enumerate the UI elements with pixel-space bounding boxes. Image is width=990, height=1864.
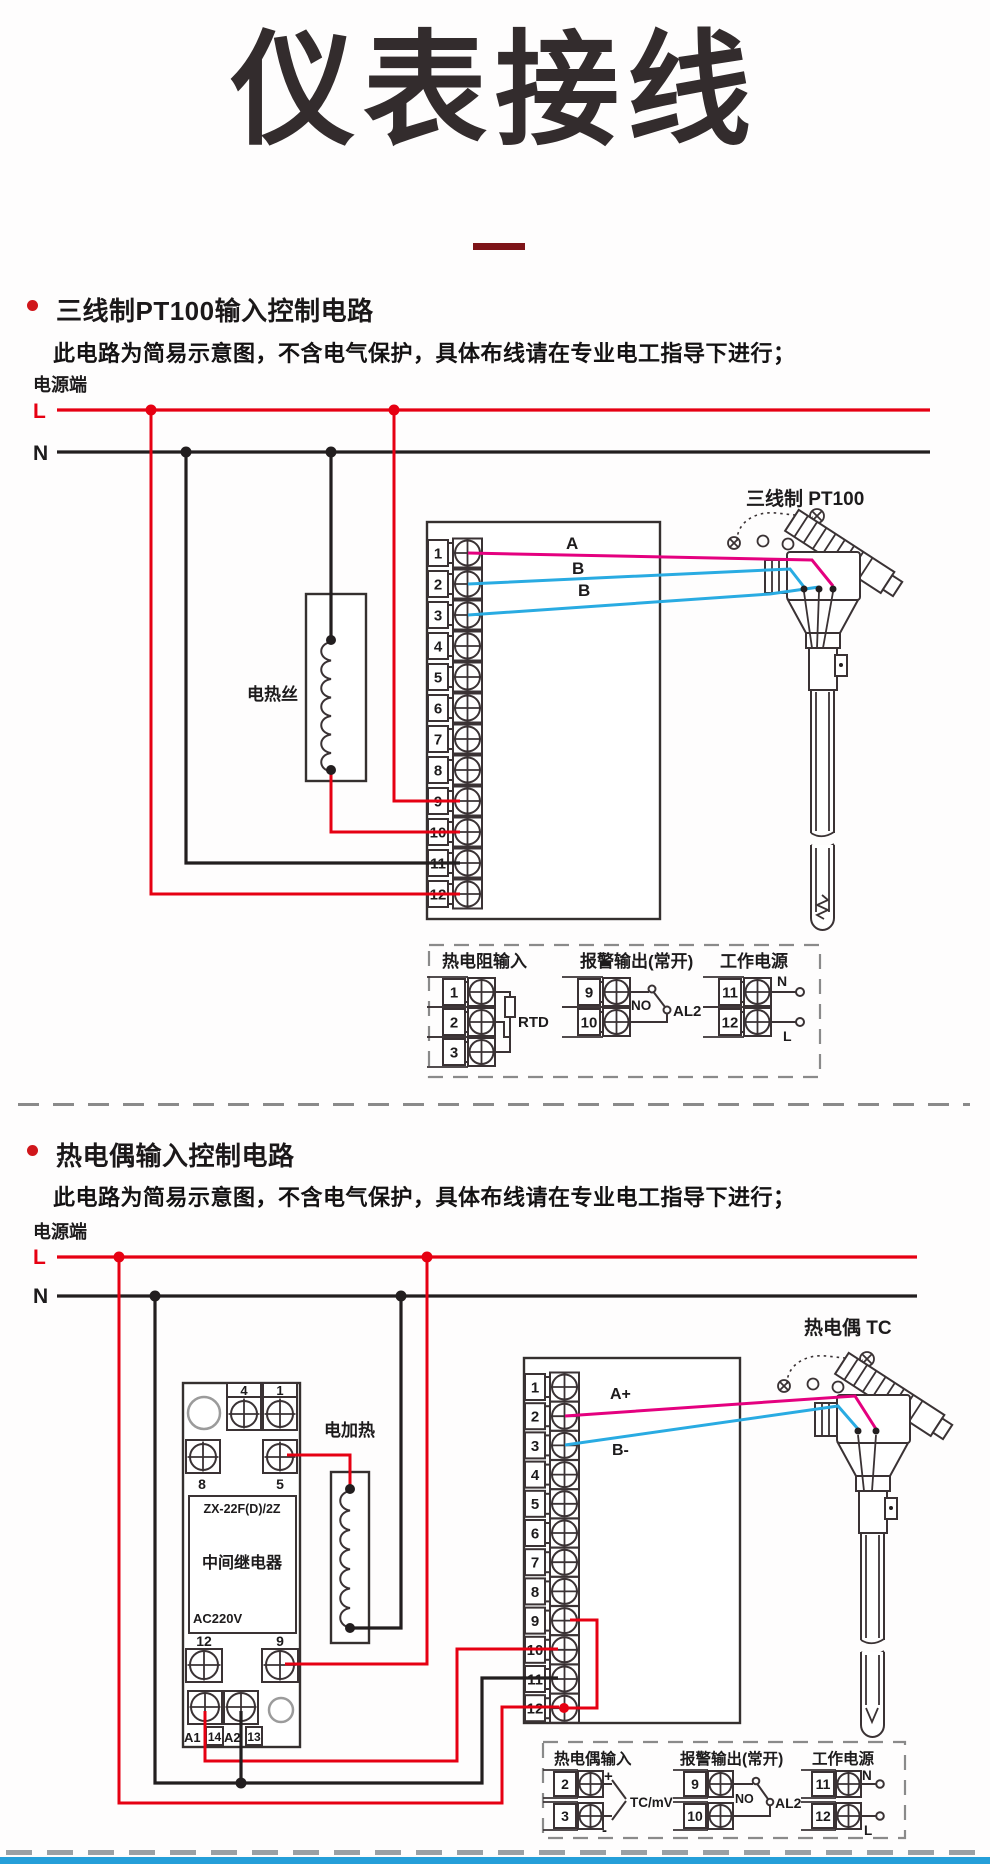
terminal-number: 10 [687, 1808, 703, 1824]
screw-terminal [227, 1397, 261, 1430]
sensor-label: 热电偶 TC [804, 1316, 892, 1339]
alarm-output-label: AL2 [673, 1003, 701, 1020]
cap-screw-icon [783, 539, 794, 550]
screw-terminal [186, 1440, 220, 1473]
legend-input-title: 热电偶输入 [554, 1749, 632, 1768]
terminal-number: 3 [561, 1808, 569, 1824]
relay-terminal-a1: A1 [184, 1730, 201, 1745]
cap-screw-icon [808, 1379, 819, 1390]
wire-b2-label: B [578, 581, 590, 600]
relay-indicator-circle [188, 1397, 220, 1429]
terminal-number: 8 [531, 1584, 539, 1601]
terminal-unit-10: 10 [562, 1007, 630, 1037]
terminal-unit-3: 3 [543, 1802, 603, 1830]
terminal-number: 12 [722, 1014, 739, 1031]
terminal-number: 4 [531, 1467, 540, 1484]
sensor-neck [838, 1435, 908, 1533]
legend-input-terminals: 123 [427, 977, 495, 1067]
wire-a-label: A [566, 534, 578, 553]
relay-terminal-13: 13 [247, 1730, 261, 1744]
terminal-number: 7 [531, 1555, 539, 1572]
rtd-label: RTD [518, 1014, 549, 1031]
section2-heading: 热电偶输入控制电路 [56, 1136, 295, 1173]
bottom-divider [6, 1850, 990, 1855]
terminal-number: 1 [434, 545, 442, 562]
legend-alarm-terminals: 910 [673, 1770, 733, 1830]
legend-power-title: 工作电源 [720, 951, 788, 971]
tc-plus-label: + [604, 1768, 613, 1785]
terminal-number: 11 [722, 984, 738, 1001]
terminal-unit-11: 11 [801, 1770, 861, 1798]
power-n-label: N [777, 973, 787, 989]
relay-voltage: AC220V [193, 1611, 242, 1626]
terminal-number: 11 [816, 1776, 831, 1792]
relay-terminal-12: 12 [196, 1633, 212, 1649]
terminal-number: 3 [531, 1438, 539, 1455]
terminal-unit-6: 6 [428, 694, 482, 723]
line-n-label: N [33, 1285, 48, 1308]
rtd-resistor-icon [505, 997, 515, 1017]
pt100-sensor: 三线制 PT100 [728, 487, 904, 930]
line-n-label: N [33, 442, 48, 465]
terminal-unit-1: 1 [427, 977, 495, 1007]
terminal-number: 6 [531, 1525, 539, 1542]
relay-indicator-circle [269, 1698, 293, 1722]
power-terminal-label: 电源端 [33, 374, 87, 395]
tc-mv-label: TC/mV [630, 1795, 673, 1810]
alarm-output-label: AL2 [775, 1795, 802, 1811]
terminal-unit-1: 1 [525, 1373, 579, 1402]
terminal-unit-7: 7 [428, 725, 482, 754]
thread-bushing [765, 560, 787, 593]
tc-minus-label: - [602, 1822, 607, 1839]
terminal-unit-9: 9 [562, 977, 630, 1007]
section1-heading: 三线制PT100输入控制电路 [56, 291, 374, 328]
relay-terminal-8: 8 [198, 1476, 206, 1492]
terminal-number: 2 [561, 1776, 569, 1792]
legend-input-terminals: 23 [543, 1770, 603, 1830]
relay-terminal-14: 14 [208, 1730, 222, 1744]
sensor-probe-shaft [811, 690, 834, 930]
terminal-unit-4: 4 [428, 632, 482, 661]
line-l-label: L [33, 400, 46, 423]
wing-screw-icon [778, 1380, 790, 1392]
sensor-probe-shaft [861, 1533, 884, 1737]
relay-model: ZX-22F(D)/2Z [203, 1502, 280, 1516]
legend-power-title: 工作电源 [812, 1749, 875, 1768]
no-contact-label: NO [735, 1792, 754, 1806]
terminal-number: 12 [527, 1701, 544, 1718]
terminal-number: 3 [450, 1044, 458, 1061]
line-l-label: L [33, 1246, 46, 1269]
terminal-unit-9: 9 [673, 1770, 733, 1798]
terminal-number: 2 [450, 1014, 458, 1031]
terminal-number: 2 [434, 576, 442, 593]
terminal-number: 8 [434, 762, 442, 779]
cap-screw-icon [833, 1382, 844, 1393]
screw-terminal [263, 1397, 297, 1430]
legend-alarm-title: 报警输出(常开) [580, 951, 693, 971]
wire-b-minus-label: B- [612, 1442, 629, 1459]
wire-a-plus-label: A+ [610, 1386, 631, 1403]
sensor-neck [788, 592, 858, 690]
sensor-label: 三线制 PT100 [746, 487, 864, 510]
page: 仪表接线 三线制PT100输入控制电路 此电路为简易示意图，不含电气保护，具体布… [0, 0, 990, 1864]
relay-terminal-5: 5 [276, 1476, 284, 1492]
heater-label: 电加热 [324, 1420, 375, 1440]
legend-alarm-terminals: 910 [562, 977, 630, 1037]
terminal-unit-4: 4 [525, 1460, 579, 1489]
terminal-number: 6 [434, 700, 442, 717]
terminal-unit-2: 2 [427, 1007, 495, 1037]
thermocouple-wiring-diagram: 电源端 L N 4 1 8 5 ZX-22F(D)/2Z 中间继电器 AC220… [0, 1210, 990, 1864]
power-terminal-label: 电源端 [33, 1221, 87, 1242]
power-lines [57, 1257, 917, 1296]
terminal-number: 5 [531, 1496, 539, 1513]
section2-bullet-icon [27, 1145, 38, 1156]
terminal-number: 10 [527, 1642, 544, 1659]
wing-screw-icon [728, 537, 740, 549]
pt100-wiring-diagram: 电源端 L N 电热丝 123456789101112 三线制 PT100 [0, 360, 990, 1110]
terminal-number: 4 [434, 638, 443, 655]
legend-power-terminals: 1112 [703, 977, 771, 1037]
relay-name: 中间继电器 [202, 1553, 283, 1572]
terminal-unit-5: 5 [428, 663, 482, 692]
terminal-number: 9 [691, 1776, 699, 1792]
terminal-unit-7: 7 [525, 1548, 579, 1577]
power-n-label: N [862, 1768, 872, 1783]
page-title: 仪表接线 [0, 24, 990, 159]
relay-terminal-1: 1 [276, 1383, 283, 1398]
terminal-number: 1 [531, 1379, 539, 1396]
terminal-number: 3 [434, 607, 442, 624]
terminal-unit-6: 6 [525, 1519, 579, 1548]
legend-alarm-title: 报警输出(常开) [680, 1749, 783, 1768]
terminal-legend: 热电阻输入 123 RTD 报警输出(常开) 910 NO AL2 工作电源 1… [427, 945, 820, 1077]
legend-power-terminals: 1112 [801, 1770, 861, 1830]
terminal-number: 5 [434, 669, 442, 686]
section1-bullet-icon [27, 300, 38, 311]
terminal-unit-2: 2 [543, 1770, 603, 1798]
terminal-number: 1 [450, 984, 458, 1001]
relay-terminal-a2: A2 [224, 1730, 241, 1745]
terminal-number: 9 [585, 984, 593, 1001]
terminal-unit-8: 8 [428, 756, 482, 785]
terminal-legend: 热电偶输入 23 + - TC/mV 报警输出(常开) 910 NO AL2 工… [543, 1742, 905, 1839]
terminal-unit-12: 12 [703, 1007, 771, 1037]
terminal-number: 2 [531, 1409, 539, 1426]
terminal-number: 11 [527, 1671, 543, 1688]
section-divider [18, 1103, 970, 1106]
title-underline [473, 243, 525, 250]
heater-element: 电热丝 [247, 594, 366, 781]
section2-note: 此电路为简易示意图，不含电气保护，具体布线请在专业电工指导下进行； [53, 1180, 796, 1212]
legend-input-title: 热电阻输入 [442, 951, 527, 971]
terminal-number: 12 [815, 1808, 831, 1824]
cap-screw-icon [758, 536, 769, 547]
terminal-unit-10: 10 [673, 1802, 733, 1830]
power-lines [57, 410, 930, 452]
terminal-unit-11: 11 [703, 977, 771, 1007]
power-l-label: L [864, 1823, 872, 1838]
terminal-unit-3: 3 [427, 1037, 495, 1067]
thermocouple-sensor: 热电偶 TC [778, 1316, 954, 1737]
terminal-number: 7 [434, 731, 442, 748]
terminal-unit-5: 5 [525, 1489, 579, 1518]
relay-terminal-4: 4 [240, 1383, 248, 1398]
terminal-number: 9 [531, 1613, 539, 1630]
no-contact-label: NO [631, 998, 651, 1013]
wire-b1-label: B [572, 559, 584, 578]
relay-terminal-9: 9 [276, 1633, 284, 1649]
heater-element: 电加热 [324, 1420, 375, 1643]
terminal-unit-8: 8 [525, 1577, 579, 1606]
heater-label: 电热丝 [247, 684, 298, 704]
power-l-label: L [783, 1028, 792, 1044]
bottom-accent-bar [0, 1857, 990, 1864]
intermediate-relay: 4 1 8 5 ZX-22F(D)/2Z 中间继电器 AC220V 12 9 A… [183, 1383, 300, 1747]
terminal-unit-12: 12 [801, 1802, 861, 1830]
screw-terminal [186, 1649, 222, 1682]
terminal-number: 10 [581, 1014, 598, 1031]
